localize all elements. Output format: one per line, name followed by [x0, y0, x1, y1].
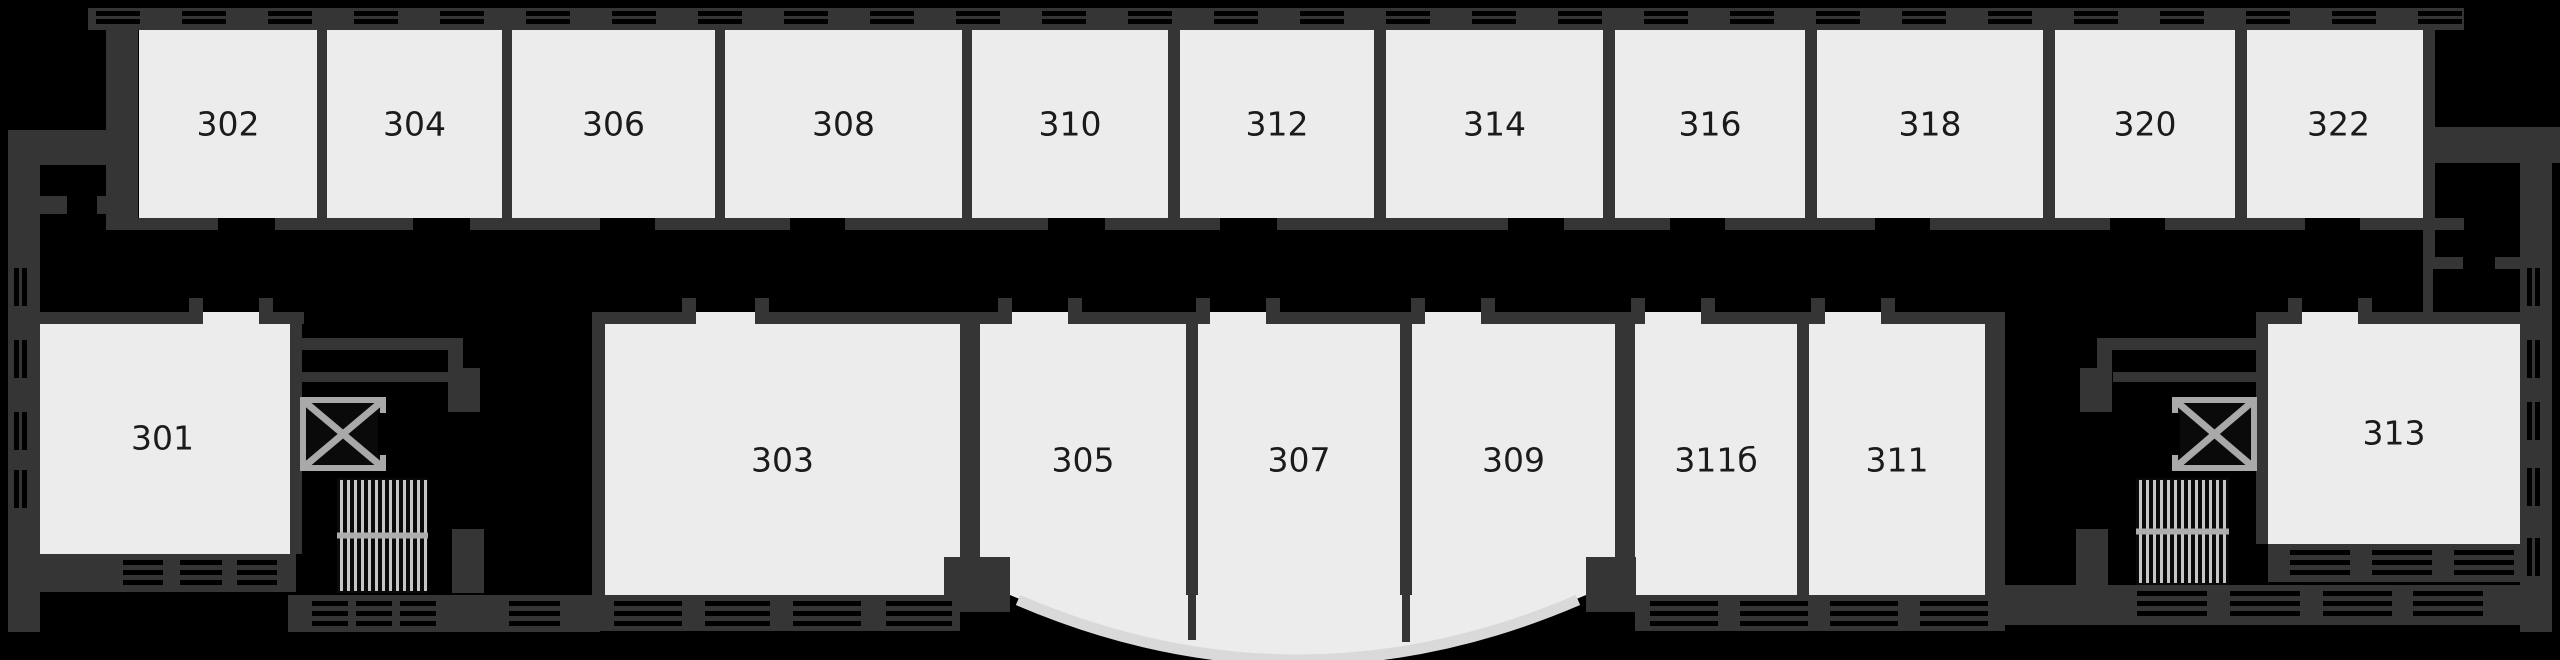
window-glyph	[2323, 611, 2392, 616]
window-glyph	[612, 11, 656, 16]
room-label-302: 302	[197, 105, 260, 144]
window-glyph	[1920, 601, 1988, 606]
window-glyph	[2332, 19, 2376, 24]
window-glyph	[400, 601, 436, 606]
door-opening-305	[1012, 312, 1068, 324]
window-glyph	[956, 19, 1000, 24]
window-glyph	[2323, 591, 2392, 596]
window-glyph	[2290, 570, 2350, 575]
wall-segment	[2108, 338, 2261, 350]
window-glyph	[22, 412, 27, 450]
window-glyph	[182, 19, 226, 24]
window-glyph	[1740, 621, 1808, 626]
window-glyph	[2160, 11, 2204, 16]
door-jamb	[259, 298, 273, 312]
window-glyph	[2137, 611, 2207, 616]
wall-segment	[300, 338, 453, 350]
window-glyph	[2527, 468, 2532, 506]
wall-segment	[32, 196, 67, 214]
door-opening-308	[790, 218, 845, 230]
door-opening-307	[1210, 312, 1266, 324]
room-label-309: 309	[1482, 441, 1545, 480]
window-glyph	[870, 19, 914, 24]
window-glyph	[180, 580, 222, 585]
window-glyph	[526, 19, 570, 24]
wall-segment	[2043, 30, 2055, 218]
window-glyph	[614, 611, 682, 616]
window-glyph	[2413, 611, 2483, 616]
right-entry-band	[2423, 127, 2560, 163]
window-glyph	[793, 621, 861, 626]
window-glyph	[268, 11, 312, 16]
door-jamb	[2288, 298, 2302, 312]
window-glyph	[14, 340, 19, 378]
window-glyph	[2160, 19, 2204, 24]
door-opening-306	[600, 218, 655, 230]
room-label-318: 318	[1899, 105, 1962, 144]
room-label-311: 311	[1866, 441, 1929, 480]
window-glyph	[784, 19, 828, 24]
window-glyph	[1816, 11, 1860, 16]
door-opening-314	[1508, 218, 1564, 230]
window-glyph	[2246, 19, 2290, 24]
window-glyph	[22, 268, 27, 306]
window-glyph	[1902, 11, 1946, 16]
window-glyph	[312, 601, 348, 606]
room-label-313: 313	[2363, 414, 2426, 453]
door-jamb	[1701, 298, 1715, 312]
door-opening-320	[2110, 218, 2165, 230]
window-glyph	[793, 611, 861, 616]
window-glyph	[1830, 621, 1898, 626]
door-opening-311	[1825, 312, 1881, 324]
floor-plan-canvas: 3023043063083103123143163183203223013033…	[0, 0, 2560, 660]
window-glyph	[2413, 591, 2483, 596]
window-glyph	[1472, 19, 1516, 24]
window-glyph	[1650, 611, 1718, 616]
window-glyph	[2535, 402, 2540, 440]
wall-segment	[1805, 30, 1817, 218]
room-label-306: 306	[582, 105, 645, 144]
door-jamb	[1811, 298, 1825, 312]
wall-segment	[1374, 30, 1386, 218]
wall-segment	[2423, 257, 2463, 269]
stair-landing	[337, 533, 428, 539]
door-opening-312	[1220, 218, 1277, 230]
window-glyph	[1558, 11, 1602, 16]
window-glyph	[356, 601, 392, 606]
wall-segment	[452, 529, 484, 593]
door-opening-318	[1875, 218, 1930, 230]
window-glyph	[2230, 591, 2300, 596]
wall-segment	[2113, 372, 2261, 382]
window-glyph	[237, 560, 277, 565]
window-glyph	[956, 11, 1000, 16]
door-jamb	[1881, 298, 1895, 312]
window-glyph	[354, 11, 398, 16]
wall-segment	[1168, 30, 1180, 218]
window-glyph	[2418, 19, 2462, 24]
window-glyph	[1472, 11, 1516, 16]
window-glyph	[2535, 340, 2540, 378]
room-label-307: 307	[1268, 441, 1331, 480]
door-jamb	[1481, 298, 1495, 312]
wall-segment	[1402, 595, 1410, 642]
window-glyph	[1128, 19, 1172, 24]
window-glyph	[705, 601, 770, 606]
window-glyph	[705, 611, 770, 616]
window-glyph	[1300, 11, 1344, 16]
wall-segment	[448, 368, 480, 412]
window-glyph	[440, 11, 484, 16]
window-glyph	[22, 470, 27, 508]
room-label-301: 301	[131, 419, 194, 458]
wall-segment	[2423, 268, 2433, 316]
room-label-310: 310	[1039, 105, 1102, 144]
wall-segment	[1797, 324, 1809, 595]
room-label-311б: 311б	[1674, 441, 1757, 480]
window-glyph	[312, 611, 348, 616]
window-glyph	[123, 560, 163, 565]
window-glyph	[22, 340, 27, 378]
window-glyph	[2535, 468, 2540, 506]
door-opening-301	[203, 312, 259, 324]
window-glyph	[2527, 268, 2532, 306]
window-glyph	[1740, 611, 1808, 616]
window-glyph	[2372, 570, 2432, 575]
window-glyph	[440, 19, 484, 24]
wall-segment	[960, 324, 980, 595]
window-glyph	[2535, 268, 2540, 306]
door-jamb	[2358, 298, 2372, 312]
window-glyph	[698, 11, 742, 16]
window-glyph	[2454, 550, 2514, 555]
wall-segment	[2235, 30, 2247, 218]
door-jamb	[1631, 298, 1645, 312]
wall-segment	[592, 312, 605, 595]
wall-segment	[1186, 324, 1198, 595]
window-glyph	[400, 621, 436, 626]
wall-segment	[962, 30, 972, 218]
window-glyph	[1730, 19, 1774, 24]
window-glyph	[509, 601, 560, 606]
window-glyph	[180, 560, 222, 565]
window-glyph	[2137, 601, 2207, 606]
wall-segment	[1603, 30, 1615, 218]
window-glyph	[1650, 601, 1718, 606]
elevator-door-gap	[2170, 413, 2180, 455]
window-glyph	[1830, 601, 1898, 606]
window-glyph	[2230, 611, 2300, 616]
window-glyph	[2323, 601, 2392, 606]
window-glyph	[1042, 19, 1086, 24]
window-glyph	[1740, 601, 1808, 606]
bottom-corridor-wall	[592, 312, 2005, 324]
door-opening-313	[2302, 312, 2358, 324]
elevator-door-gap	[378, 413, 388, 455]
window-glyph	[1042, 11, 1086, 16]
door-jamb	[189, 298, 203, 312]
window-glyph	[886, 611, 952, 616]
window-glyph	[1644, 19, 1688, 24]
window-glyph	[2454, 570, 2514, 575]
window-glyph	[354, 19, 398, 24]
window-glyph	[2535, 538, 2540, 576]
window-glyph	[793, 601, 861, 606]
window-glyph	[509, 611, 560, 616]
window-glyph	[2230, 601, 2300, 606]
room-label-303: 303	[751, 441, 814, 480]
window-glyph	[2290, 550, 2350, 555]
window-glyph	[14, 412, 19, 450]
window-glyph	[2418, 11, 2462, 16]
window-glyph	[2246, 11, 2290, 16]
window-glyph	[1128, 11, 1172, 16]
window-glyph	[1650, 621, 1718, 626]
window-glyph	[2372, 550, 2432, 555]
wall-segment	[20, 312, 304, 324]
wall-segment	[1586, 557, 1636, 612]
wall-segment	[1615, 324, 1635, 595]
window-glyph	[1902, 19, 1946, 24]
door-opening-303	[696, 312, 755, 324]
window-glyph	[1920, 611, 1988, 616]
window-glyph	[1300, 19, 1344, 24]
window-glyph	[1214, 11, 1258, 16]
window-glyph	[2074, 19, 2118, 24]
door-opening-311б	[1645, 312, 1701, 324]
window-glyph	[180, 570, 222, 575]
right-end-wall	[2423, 30, 2435, 268]
wall-segment	[1188, 595, 1196, 640]
wall-segment	[2076, 529, 2108, 593]
window-glyph	[614, 601, 682, 606]
door-opening-304	[413, 218, 470, 230]
window-glyph	[614, 621, 682, 626]
floor-plan: 3023043063083103123143163183203223013033…	[0, 0, 2560, 660]
window-glyph	[1920, 621, 1988, 626]
door-jamb	[1068, 298, 1082, 312]
window-glyph	[123, 570, 163, 575]
door-jamb	[682, 298, 696, 312]
window-glyph	[96, 19, 140, 24]
window-glyph	[886, 621, 952, 626]
room-label-316: 316	[1679, 105, 1742, 144]
window-glyph	[509, 621, 560, 626]
door-opening-302	[218, 218, 275, 230]
window-glyph	[2413, 601, 2483, 606]
window-glyph	[870, 11, 914, 16]
door-jamb	[755, 298, 769, 312]
window-glyph	[2527, 340, 2532, 378]
room-label-308: 308	[812, 105, 875, 144]
window-glyph	[1558, 19, 1602, 24]
window-glyph	[2527, 402, 2532, 440]
door-opening-309	[1425, 312, 1481, 324]
window-glyph	[14, 470, 19, 508]
door-opening-310	[1048, 218, 1105, 230]
wall-segment	[502, 30, 512, 218]
window-glyph	[2372, 560, 2432, 565]
room-label-304: 304	[383, 105, 446, 144]
window-glyph	[1386, 19, 1430, 24]
window-glyph	[784, 11, 828, 16]
window-glyph	[356, 621, 392, 626]
door-jamb	[1266, 298, 1280, 312]
wall-segment	[300, 372, 448, 382]
room-label-314: 314	[1463, 105, 1526, 144]
window-glyph	[2527, 538, 2532, 576]
window-glyph	[1988, 11, 2032, 16]
window-glyph	[237, 570, 277, 575]
window-glyph	[182, 11, 226, 16]
window-glyph	[2332, 11, 2376, 16]
stair-landing	[2136, 529, 2229, 535]
room-label-305: 305	[1052, 441, 1115, 480]
wall-segment	[1400, 324, 1412, 595]
window-glyph	[1988, 19, 2032, 24]
window-glyph	[1730, 11, 1774, 16]
window-glyph	[14, 268, 19, 306]
window-glyph	[1644, 11, 1688, 16]
door-jamb	[1196, 298, 1210, 312]
wall-segment	[2080, 368, 2112, 412]
window-glyph	[2454, 560, 2514, 565]
door-jamb	[998, 298, 1012, 312]
window-glyph	[356, 611, 392, 616]
window-glyph	[2137, 591, 2207, 596]
room-label-320: 320	[2114, 105, 2177, 144]
wall-segment	[97, 196, 130, 214]
window-glyph	[698, 19, 742, 24]
left-entry-band	[8, 130, 138, 165]
wall-segment	[2256, 312, 2520, 324]
window-glyph	[2290, 560, 2350, 565]
window-glyph	[1816, 19, 1860, 24]
window-glyph	[400, 611, 436, 616]
window-glyph	[123, 580, 163, 585]
window-glyph	[1386, 11, 1430, 16]
window-glyph	[96, 11, 140, 16]
window-glyph	[268, 19, 312, 24]
window-glyph	[886, 601, 952, 606]
window-glyph	[1214, 19, 1258, 24]
door-opening-322	[2305, 218, 2360, 230]
door-opening-316	[1670, 218, 1725, 230]
window-glyph	[705, 621, 770, 626]
door-jamb	[1411, 298, 1425, 312]
room-label-312: 312	[1246, 105, 1309, 144]
wall-segment	[317, 30, 327, 218]
window-glyph	[237, 580, 277, 585]
window-glyph	[526, 11, 570, 16]
window-glyph	[1830, 611, 1898, 616]
window-glyph	[612, 19, 656, 24]
window-glyph	[312, 621, 348, 626]
wall-segment	[715, 30, 725, 218]
room-label-322: 322	[2307, 105, 2370, 144]
window-glyph	[2074, 11, 2118, 16]
wall-segment	[1985, 324, 2005, 595]
